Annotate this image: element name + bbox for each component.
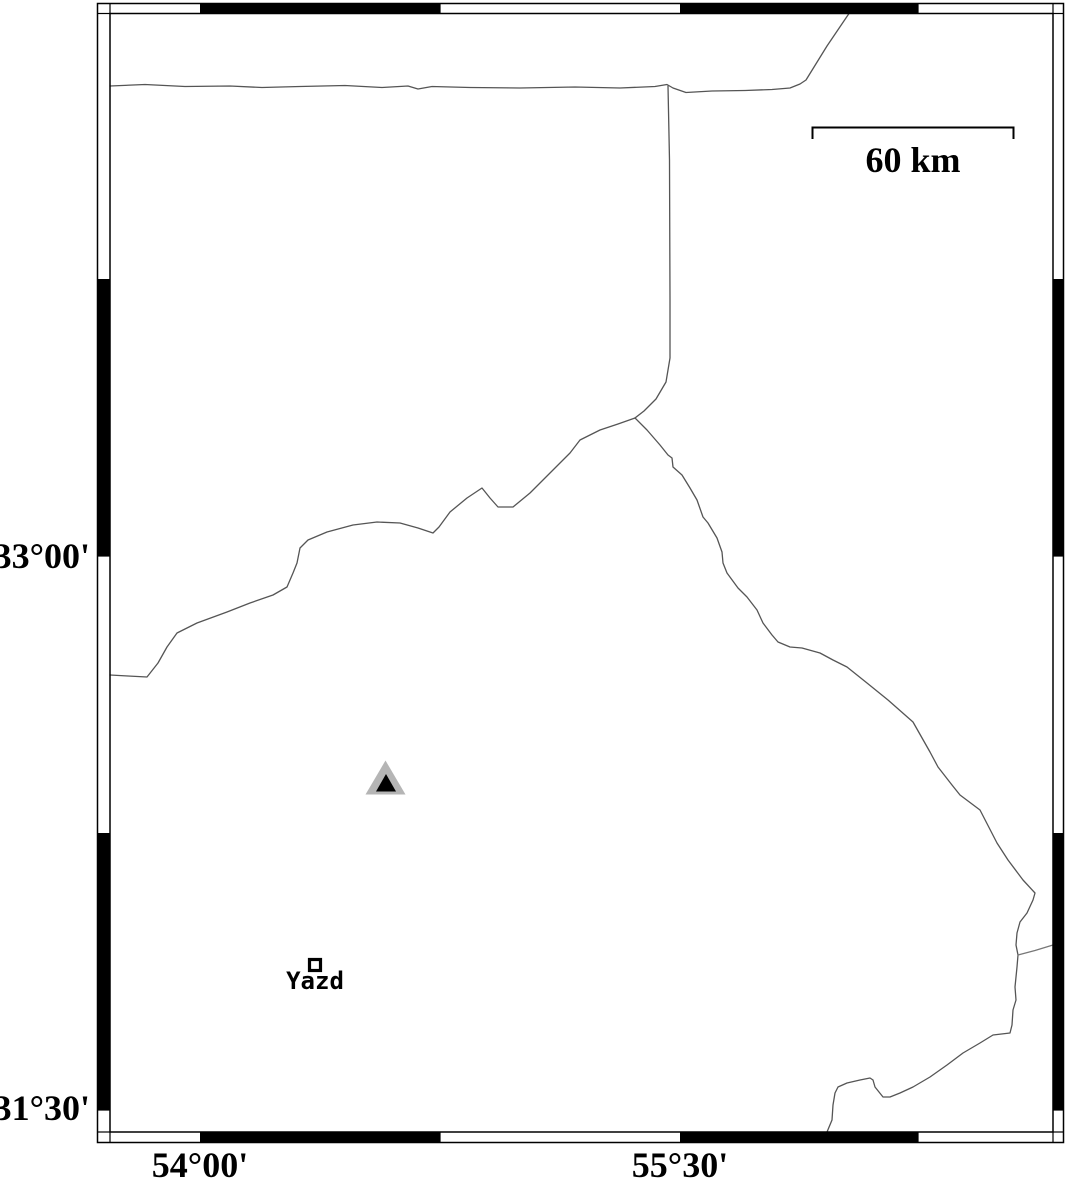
boundary-line-southwest bbox=[110, 418, 635, 677]
boundary-line-southeast bbox=[635, 418, 1035, 1132]
map-canvas: 33°00' 31°30' 54°00' 55°30' 60 km Yazd bbox=[0, 0, 1066, 1181]
map-figure: 33°00' 31°30' 54°00' 55°30' 60 km Yazd bbox=[0, 0, 1066, 1181]
frame-left-black-1 bbox=[98, 279, 111, 556]
boundary-line-vertical bbox=[635, 86, 670, 418]
frame-right-black-2 bbox=[1053, 833, 1064, 1110]
bottom-axis-label-55-30: 55°30' bbox=[632, 1145, 728, 1181]
boundary-line-north bbox=[110, 14, 849, 93]
frame-bottom-black-1 bbox=[200, 1132, 440, 1143]
boundary-line-east-exit bbox=[1018, 945, 1053, 955]
frame-top-black-1 bbox=[200, 4, 440, 14]
left-axis-label-33-00: 33°00' bbox=[0, 536, 90, 576]
yazd-city-label: Yazd bbox=[286, 967, 344, 995]
scale-bar-label: 60 km bbox=[865, 140, 960, 180]
frame-bottom-black-2 bbox=[680, 1132, 918, 1143]
scale-bar: 60 km bbox=[813, 128, 1014, 181]
frame-top-black-2 bbox=[680, 4, 918, 14]
scale-bar-bracket bbox=[813, 128, 1014, 140]
left-axis-label-31-30: 31°30' bbox=[0, 1088, 90, 1128]
frame-inner-rect bbox=[110, 14, 1053, 1133]
bottom-axis-label-54-00: 54°00' bbox=[152, 1145, 248, 1181]
markers: Yazd bbox=[286, 761, 405, 996]
frame-left-black-2 bbox=[98, 833, 111, 1110]
boundary-lines bbox=[110, 14, 1053, 1133]
frame-right-black-1 bbox=[1053, 279, 1064, 556]
